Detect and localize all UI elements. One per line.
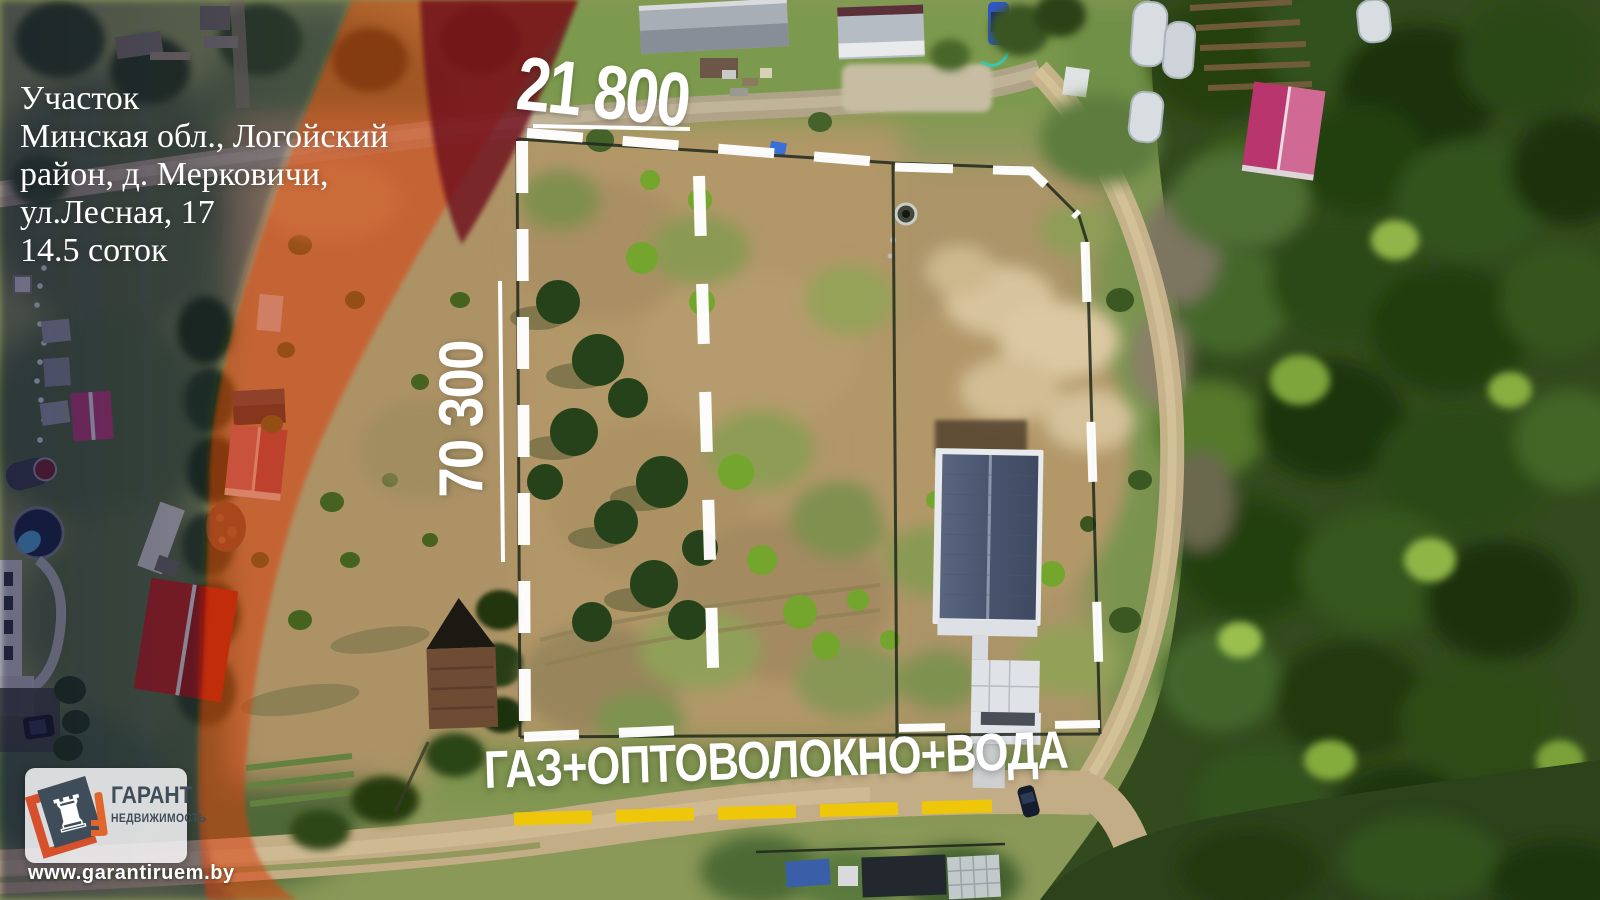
listing-info-block: Участок Минская обл., Логойский район, д… <box>20 80 388 270</box>
key-tooth-icon <box>91 830 101 836</box>
pink-roof-house <box>1242 82 1326 181</box>
address-line-3: ул.Лесная, 17 <box>20 194 388 232</box>
brand-subtitle: НЕДВИЖИМОСТЬ <box>111 813 206 825</box>
brand-name: ГАРАНТ <box>111 782 193 810</box>
address-line-2: район, д. Мерковичи, <box>20 156 388 194</box>
agency-logo-icon: ♜ <box>31 776 109 856</box>
listing-graphic: Участок Минская обл., Логойский район, д… <box>0 0 1600 900</box>
agency-logo-card: ♜ ГАРАНТ НЕДВИЖИМОСТЬ <box>25 768 187 863</box>
listing-title: Участок <box>20 80 388 118</box>
dimension-width-label: 21 800 <box>513 40 693 144</box>
dimension-depth-label: 70 300 <box>427 323 498 517</box>
key-tooth-icon <box>91 820 99 826</box>
address-line-1: Минская обл., Логойский <box>20 118 388 156</box>
plot-area: 14.5 соток <box>20 232 388 270</box>
brand-website: www.garantiruem.by <box>28 862 235 885</box>
